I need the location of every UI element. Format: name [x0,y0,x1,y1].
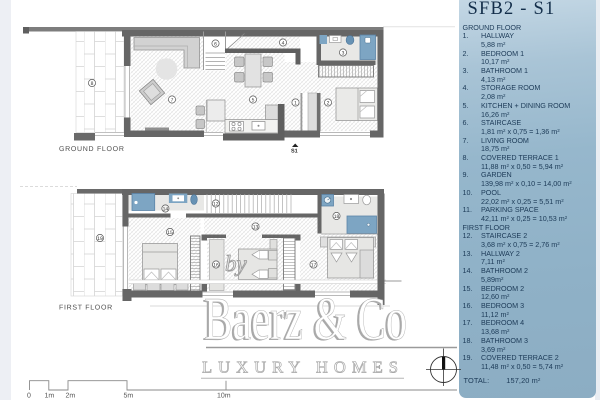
svg-text:5m: 5m [124,393,134,400]
svg-text:7: 7 [171,98,174,104]
svg-text:by: by [225,251,248,276]
svg-text:13: 13 [253,225,259,231]
svg-text:1: 1 [294,101,297,107]
svg-text:8: 8 [91,81,94,87]
svg-text:FIRST FLOOR: FIRST FLOOR [59,305,113,312]
svg-text:S1: S1 [291,149,298,155]
svg-text:4: 4 [282,41,285,47]
svg-text:15: 15 [167,230,173,236]
svg-text:14: 14 [163,207,169,213]
svg-text:10m: 10m [217,393,231,400]
svg-text:1m: 1m [45,393,55,400]
svg-text:Baerz & Co: Baerz & Co [204,286,407,353]
svg-text:GROUND FLOOR: GROUND FLOOR [59,146,125,153]
svg-text:5: 5 [252,98,255,104]
svg-text:19: 19 [97,236,103,242]
svg-text:18: 18 [334,214,340,220]
svg-text:2: 2 [327,101,330,107]
svg-text:17: 17 [311,263,317,269]
svg-text:LUXURY HOMES: LUXURY HOMES [202,358,404,377]
svg-text:16: 16 [213,263,219,269]
svg-text:6: 6 [214,42,217,48]
svg-text:3: 3 [342,51,345,57]
svg-text:2m: 2m [66,393,76,400]
svg-text:12: 12 [213,202,219,208]
svg-text:0: 0 [27,393,31,400]
